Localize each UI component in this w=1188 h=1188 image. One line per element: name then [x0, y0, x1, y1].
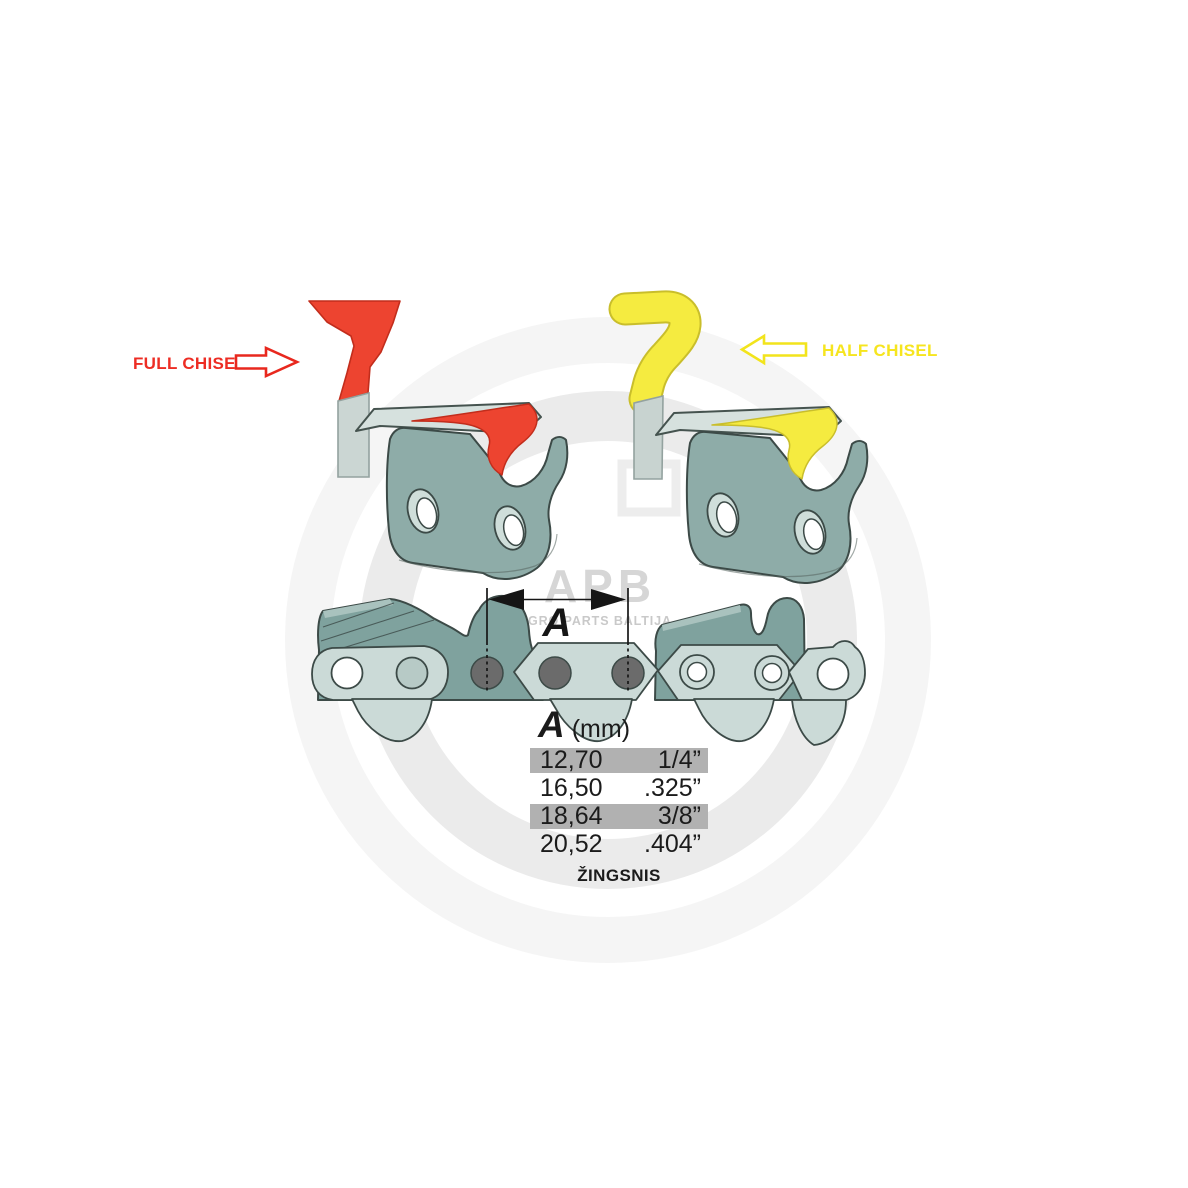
pitch-inch-value: 1/4” [658, 746, 701, 775]
half-chisel-stem [634, 396, 663, 479]
pitch-caption: ŽINGSNIS [530, 866, 708, 886]
full-chisel-label: FULL CHISEL [133, 354, 247, 373]
pitch-inch-value: .404” [644, 830, 701, 859]
pitch-table-header: A (mm) [538, 708, 708, 742]
pitch-table-header-unit: (mm) [572, 715, 630, 744]
pitch-inch-value: .325” [644, 774, 701, 803]
chainsaw-chain-diagram: APB AGRO PARTS BALTIJA FULL CHISEL HAL [0, 0, 1188, 1188]
pitch-mm-value: 18,64 [540, 802, 603, 831]
pitch-table: A (mm) 12,70 1/4” 16,50 .325” 18,64 3/8”… [530, 708, 708, 886]
pitch-mm-value: 16,50 [540, 774, 603, 803]
diagram-canvas: APB AGRO PARTS BALTIJA FULL CHISEL HAL [0, 0, 1188, 1188]
half-chisel-label: HALF CHISEL [822, 341, 938, 360]
pitch-table-row: 18,64 3/8” [530, 804, 708, 829]
chain-hole [818, 659, 849, 690]
pitch-mm-value: 12,70 [540, 746, 603, 775]
pitch-mm-value: 20,52 [540, 830, 603, 859]
full-chisel-profile [309, 301, 400, 401]
chain-rivet [539, 657, 571, 689]
chain-hole-center [763, 664, 782, 683]
chain-hole [397, 658, 428, 689]
full-chisel-stem [338, 393, 369, 477]
dimension-letter: A [542, 601, 572, 645]
pitch-table-header-letter: A [538, 708, 565, 742]
pitch-inch-value: 3/8” [658, 802, 701, 831]
pitch-table-row: 16,50 .325” [530, 776, 708, 801]
pitch-table-row: 20,52 .404” [530, 832, 708, 857]
watermark-subtitle: AGRO PARTS BALTIJA [518, 614, 672, 628]
pitch-table-row: 12,70 1/4” [530, 748, 708, 773]
chain-hole [332, 658, 363, 689]
chain-hole-center [688, 663, 707, 682]
